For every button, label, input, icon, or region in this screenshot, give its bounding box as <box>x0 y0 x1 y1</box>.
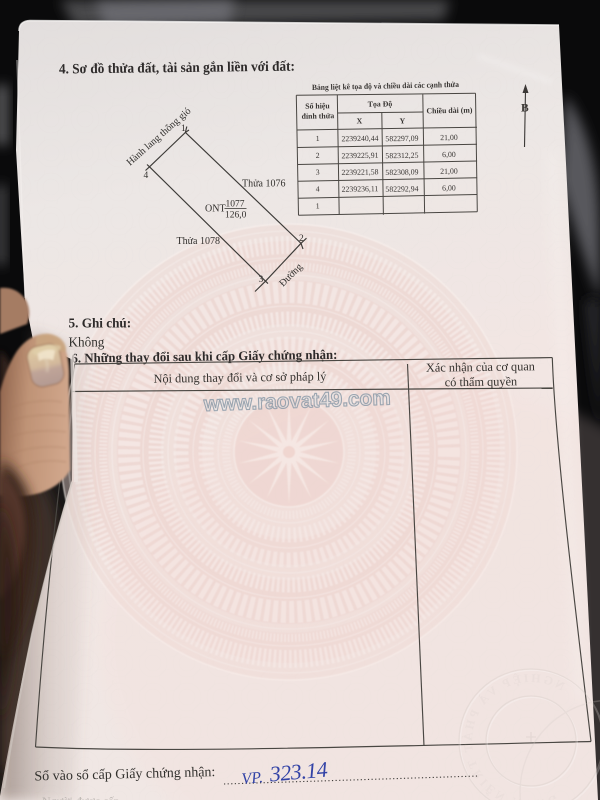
svg-text:582292,94: 582292,94 <box>385 184 418 194</box>
svg-text:Thửa 1076: Thửa 1076 <box>242 179 285 190</box>
svg-text:582308,09: 582308,09 <box>385 167 418 177</box>
svg-text:B: B <box>521 103 529 115</box>
svg-text:1077: 1077 <box>226 200 245 210</box>
svg-text:Người được cấp: Người được cấp <box>42 794 120 800</box>
svg-text:2: 2 <box>299 234 304 244</box>
svg-text:5. Ghi chú:: 5. Ghi chú: <box>69 316 132 331</box>
svg-text:có thẩm quyền: có thẩm quyền <box>445 374 518 389</box>
svg-text:2239236,11: 2239236,11 <box>342 184 379 194</box>
svg-text:1: 1 <box>181 124 186 134</box>
svg-text:Xác nhận của cơ quan: Xác nhận của cơ quan <box>426 359 535 375</box>
svg-text:ONT: ONT <box>205 204 226 215</box>
svg-text:4: 4 <box>316 184 320 193</box>
svg-text:3: 3 <box>259 275 264 285</box>
svg-text:Số hiệu: Số hiệu <box>305 101 330 110</box>
svg-text:1: 1 <box>316 201 320 210</box>
svg-text:582297,09: 582297,09 <box>385 134 418 144</box>
svg-text:6,00: 6,00 <box>442 150 456 159</box>
svg-text:2239225,91: 2239225,91 <box>341 151 378 161</box>
svg-text:Tọa Độ: Tọa Độ <box>368 99 393 108</box>
svg-text:3: 3 <box>316 168 320 177</box>
svg-text:6,00: 6,00 <box>442 183 456 192</box>
svg-text:Y: Y <box>400 116 406 125</box>
svg-text:4. Sơ đồ thửa đất, tài sản gắn: 4. Sơ đồ thửa đất, tài sản gắn liền với … <box>59 59 295 78</box>
svg-text:2239240,44: 2239240,44 <box>341 134 378 144</box>
svg-text:Chiều dài (m): Chiều dài (m) <box>426 106 472 116</box>
svg-text:X: X <box>357 116 363 125</box>
svg-text:Nội dung thay đổi và cơ sở phá: Nội dung thay đổi và cơ sở pháp lý <box>153 369 327 385</box>
svg-text:đỉnh thửa: đỉnh thửa <box>302 111 335 121</box>
svg-text:Thửa 1078: Thửa 1078 <box>177 236 220 247</box>
svg-text:1: 1 <box>316 134 320 143</box>
svg-text:2: 2 <box>316 151 320 160</box>
svg-text:4: 4 <box>144 171 149 181</box>
svg-text:2239221,58: 2239221,58 <box>341 167 378 177</box>
svg-text:126,0: 126,0 <box>225 211 247 221</box>
svg-text:21,00: 21,00 <box>440 167 458 176</box>
svg-text:Không: Không <box>69 335 105 350</box>
svg-text:21,00: 21,00 <box>440 133 458 142</box>
svg-text:582312,25: 582312,25 <box>385 151 418 161</box>
